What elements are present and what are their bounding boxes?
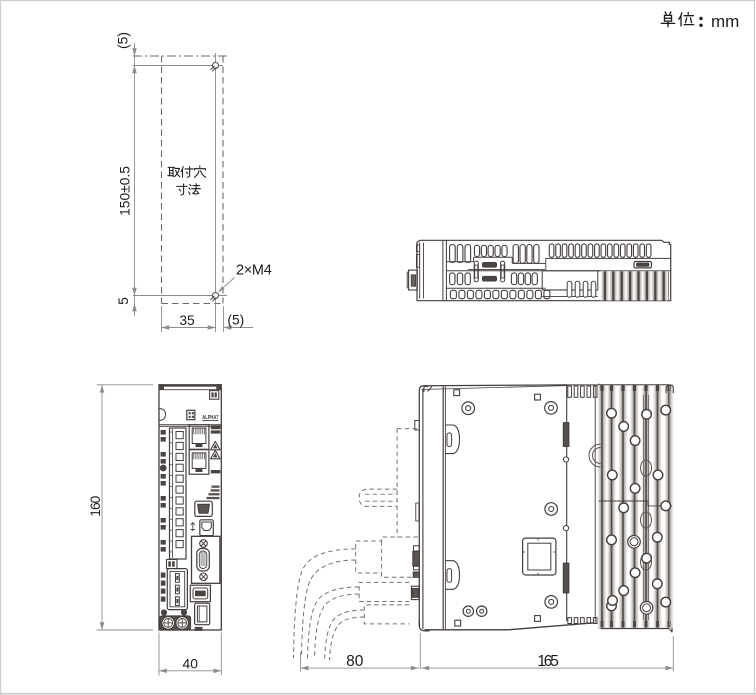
svg-text:5: 5 <box>116 297 131 305</box>
svg-text:2×M4: 2×M4 <box>236 263 272 279</box>
svg-text:(5): (5) <box>227 313 244 328</box>
svg-text:mm: mm <box>711 12 739 31</box>
svg-text:165: 165 <box>537 653 558 670</box>
svg-text:160: 160 <box>88 495 103 516</box>
svg-text:150±0.5: 150±0.5 <box>117 166 132 216</box>
svg-text:(5): (5) <box>115 32 130 49</box>
svg-text:40: 40 <box>183 657 199 672</box>
svg-text:35: 35 <box>179 313 195 328</box>
svg-text:80: 80 <box>346 653 364 670</box>
